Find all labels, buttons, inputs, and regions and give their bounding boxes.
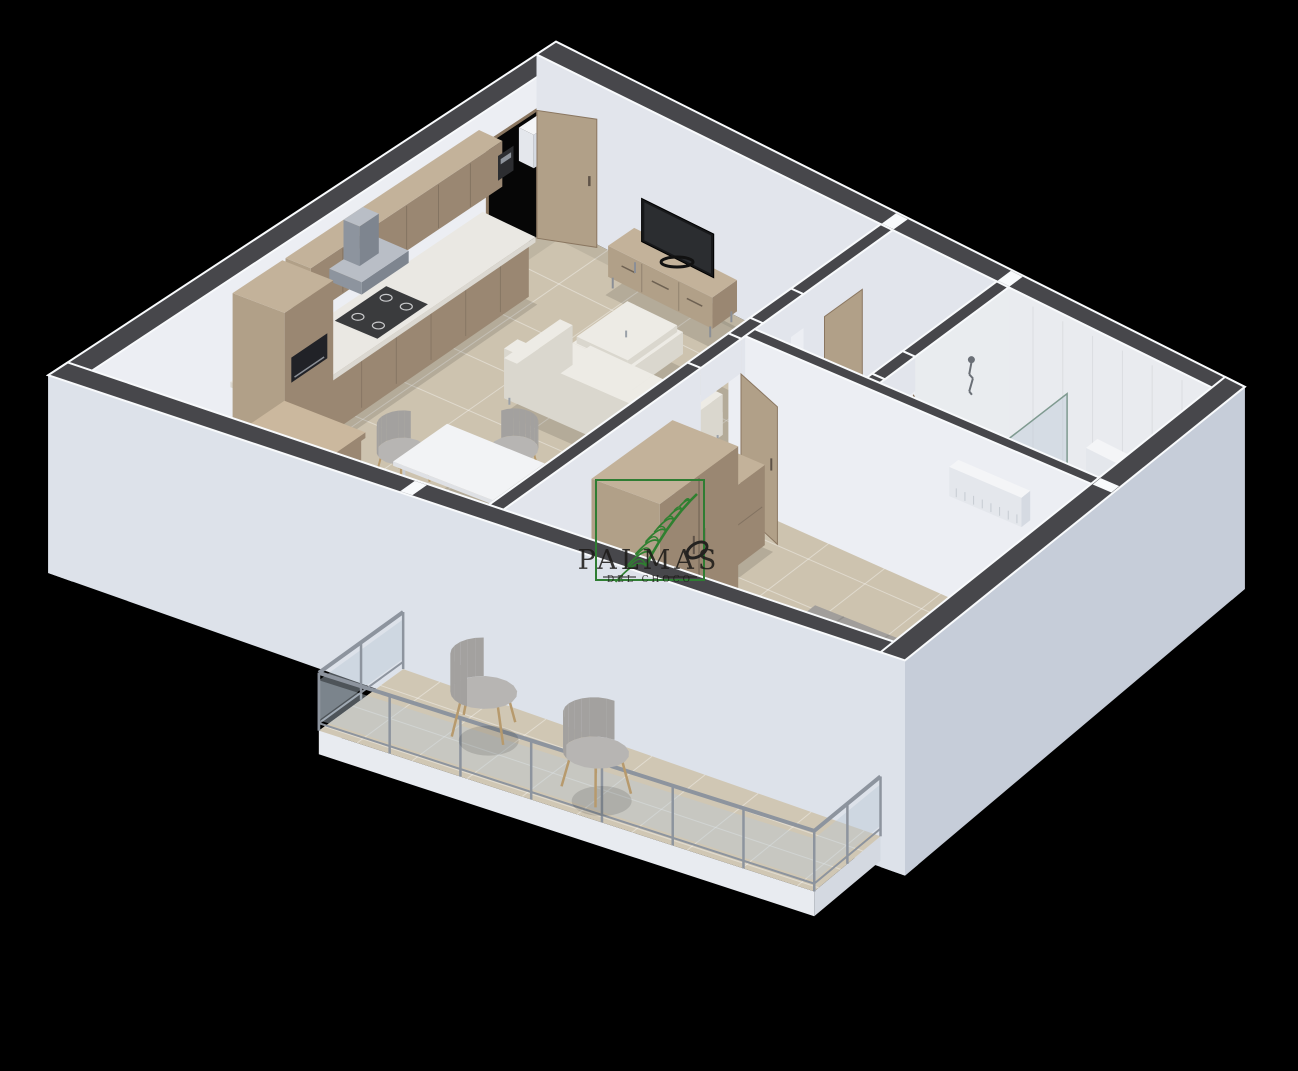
floorplan-render-stage: PALMAS DEL CHOCO — [0, 0, 1298, 1071]
logo-subtitle: DEL CHOCO — [607, 575, 693, 585]
logo-title: PALMAS — [578, 545, 721, 576]
apartment-3d-floorplan: PALMAS DEL CHOCO — [0, 0, 1298, 1071]
entrance-door — [537, 110, 597, 247]
